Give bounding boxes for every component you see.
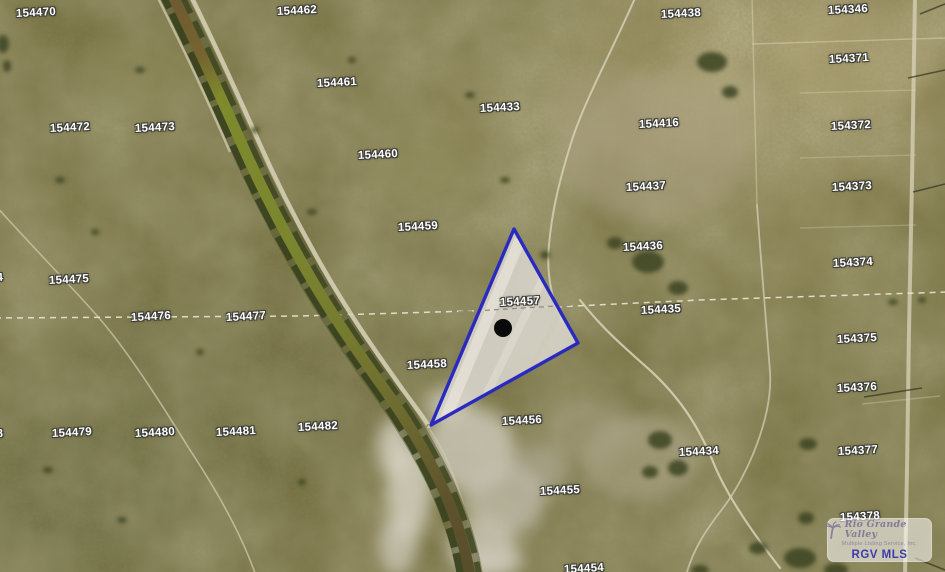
- map-graphics-layer: [0, 0, 945, 572]
- listing-marker-dot: [494, 319, 512, 337]
- mls-watermark: Rio Grande Valley Multiple Listing Servi…: [827, 518, 932, 562]
- watermark-brand-subline: Multiple Listing Service, Inc.: [842, 542, 917, 548]
- palm-tree-icon: [823, 519, 843, 541]
- watermark-brand-script: Rio Grande Valley: [845, 520, 932, 539]
- watermark-brand-abbr: RGV MLS: [852, 550, 908, 562]
- map-viewport[interactable]: 1544701544621544381543461544611543711544…: [0, 0, 945, 572]
